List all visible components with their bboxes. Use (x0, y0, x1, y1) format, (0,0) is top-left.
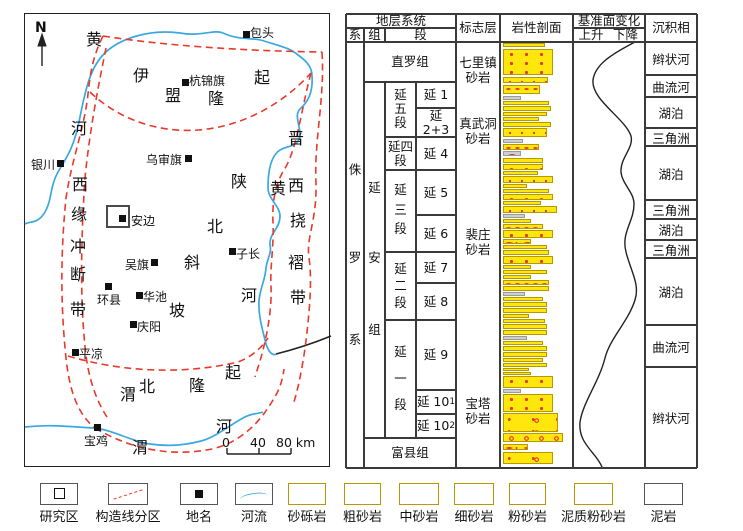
strat-vchar-member-yan3: 延 (385, 183, 416, 197)
litho-bar (503, 77, 548, 83)
region-label-char: 晋 (287, 130, 305, 148)
litho-bar (503, 444, 528, 450)
tectonic-line-symbol (114, 489, 143, 499)
region-label-char: 黄 (269, 180, 287, 198)
city-label-宝鸡: 宝鸡 (84, 432, 108, 449)
city-marker-平凉 (72, 349, 79, 356)
region-label-char: 隆 (188, 377, 206, 395)
region-label-char: 渭 (119, 386, 137, 404)
strat-header-沉积相: 沉积相 (645, 14, 697, 42)
strat-vchar-jurassic-system: 罗 (346, 251, 364, 265)
city-label-杭锦旗: 杭锦旗 (189, 72, 225, 89)
place-symbol (195, 490, 203, 498)
facies-cell-湖泊: 湖泊 (645, 258, 697, 325)
city-marker-子长 (229, 248, 236, 255)
legend-swatch-砂砾岩 (288, 483, 326, 505)
litho-bar (503, 189, 549, 193)
marker-bed-label: 七里镇 砂岩 (459, 55, 497, 85)
marker-bed-label: 真武洞 砂岩 (459, 116, 497, 146)
facies-cell-曲流河: 曲流河 (645, 75, 697, 97)
legend-label-河流: 河流 (241, 506, 267, 525)
region-label-char: 河 (215, 418, 233, 436)
litho-bar (503, 245, 547, 249)
scale-label: 80 km (276, 435, 315, 450)
litho-bar (503, 171, 538, 175)
city-label-子长: 子长 (236, 245, 260, 262)
facies-cell-辫状河: 辫状河 (645, 42, 697, 75)
litho-bar (503, 194, 553, 200)
litho-bar (503, 164, 543, 170)
region-label-char: 河 (240, 287, 258, 305)
river-symbol (240, 491, 269, 504)
strat-vchar-member-yan5: 段 (385, 116, 416, 130)
strat-vchar-yanan-formation: 组 (364, 323, 385, 337)
litho-bar (503, 206, 557, 213)
litho-bar (503, 85, 540, 94)
strat-cell-延10: 延 102 (416, 414, 456, 438)
strat-vchar-jurassic-system: 侏 (346, 163, 364, 177)
strat-cell-富县组: 富县组 (364, 438, 456, 468)
region-label-char: 隆 (207, 90, 225, 108)
scale-label: 40 (250, 435, 266, 450)
litho-bar (503, 214, 525, 218)
litho-bar (503, 376, 553, 388)
litho-bar (503, 158, 543, 163)
litho-bar (503, 358, 543, 362)
city-marker-杭锦旗 (182, 79, 189, 86)
litho-bar (503, 270, 547, 274)
facies-cell-辫状河: 辫状河 (645, 367, 697, 468)
litho-bar (503, 250, 549, 255)
figure-ordos-basin-stratigraphy: N 包头杭锦旗银川乌审旗安边子长吴旗环县华池庆阳平凉宝鸡黄河伊盟隆起西缘冲断带陕… (0, 0, 743, 531)
city-label-环县: 环县 (97, 291, 121, 308)
litho-bar (503, 452, 553, 464)
legend-label-粗砂岩: 粗砂岩 (343, 506, 382, 525)
legend-label-中砂岩: 中砂岩 (399, 506, 438, 525)
legend-swatch-中砂岩 (399, 483, 439, 505)
litho-bar (503, 184, 527, 188)
strat-vchar-member-yan1: 一 (385, 372, 416, 386)
litho-bar (503, 292, 525, 296)
litho-bar (503, 330, 547, 335)
strat-vchar-yanan-formation: 安 (364, 251, 385, 265)
strat-vchar-member-yan5: 延 (385, 88, 416, 102)
city-label-华池: 华池 (143, 288, 167, 305)
region-label-char: 带 (69, 301, 87, 319)
facies-cell-三角洲: 三角洲 (645, 240, 697, 258)
litho-bar (503, 122, 551, 127)
litho-bar (503, 308, 547, 313)
city-label-平凉: 平凉 (79, 345, 103, 362)
strat-cell-延7: 延 7 (416, 252, 456, 283)
litho-bar (503, 151, 521, 156)
grid-line-v (345, 14, 346, 468)
strat-header-系: 系 (346, 28, 364, 42)
grid-line-v (499, 14, 500, 468)
legend-label-细砂岩: 细砂岩 (454, 506, 493, 525)
strat-vchar-member-yan3: 段 (385, 222, 416, 236)
strat-cell-延4: 延 4 (416, 137, 456, 170)
litho-bar (503, 280, 549, 285)
litho-bar (503, 389, 521, 393)
legend-label-构造线分区: 构造线分区 (95, 506, 160, 525)
city-label-乌审旗: 乌审旗 (146, 151, 182, 168)
legend-swatch-粉砂岩 (509, 483, 546, 505)
legend-swatch-河流 (235, 483, 273, 505)
litho-bar (503, 319, 545, 323)
base-level-curve (580, 42, 637, 467)
strat-header-上升: 上升 (574, 28, 608, 42)
region-label-char: 盟 (164, 87, 182, 105)
city-label-庆阳: 庆阳 (137, 318, 161, 335)
legend-swatch-研究区 (40, 483, 78, 505)
city-marker-乌审旗 (185, 155, 192, 162)
litho-bar (503, 346, 547, 351)
north-label: N (35, 20, 47, 36)
region-label-char: 冲 (69, 238, 87, 256)
strat-cell-延四段: 延四 段 (385, 137, 416, 170)
litho-bar (503, 286, 549, 291)
grid-line-v (363, 28, 364, 468)
strat-cell-延8: 延 8 (416, 283, 456, 320)
strat-vchar-member-yan2: 二 (385, 279, 416, 293)
strat-header-岩性剖面: 岩性剖面 (500, 14, 573, 42)
region-label-char: 坡 (168, 302, 186, 320)
legend-swatch-构造线分区 (108, 483, 148, 505)
facies-cell-湖泊: 湖泊 (645, 219, 697, 240)
litho-bar (503, 324, 547, 329)
strat-header-段: 段 (385, 28, 456, 42)
strat-vchar-yanan-formation: 延 (364, 181, 385, 195)
city-marker-环县 (105, 283, 112, 290)
strat-vchar-member-yan1: 延 (385, 345, 416, 359)
study-area-symbol (54, 488, 65, 499)
region-label-char: 缘 (70, 206, 88, 224)
litho-bar (503, 239, 531, 244)
scale-label: 0 (222, 435, 230, 450)
litho-bar (503, 363, 547, 367)
strat-cell-延2+3: 延 2+3 (416, 108, 456, 137)
strat-header-下降: 下降 (607, 28, 644, 42)
legend-label-地名: 地名 (186, 506, 212, 525)
litho-bar (503, 314, 529, 318)
region-label-char: 伊 (132, 67, 150, 85)
litho-bar (503, 128, 547, 137)
litho-bar (503, 275, 531, 279)
region-label-char: 北 (138, 378, 156, 396)
strat-vchar-member-yan3: 三 (385, 203, 416, 217)
strat-header-地层系统: 地层系统 (346, 14, 456, 28)
strat-cell-直罗组: 直罗组 (364, 42, 456, 82)
region-label-char: 河 (70, 120, 88, 138)
legend-label-研究区: 研究区 (39, 506, 78, 525)
litho-bar (503, 224, 543, 229)
litho-bar (503, 297, 543, 301)
strat-header-组: 组 (364, 28, 385, 42)
litho-bar (503, 201, 541, 205)
region-label-char: 挠 (289, 212, 307, 230)
litho-bar (503, 117, 539, 121)
city-marker-庆阳 (130, 321, 137, 328)
legend-label-泥岩: 泥岩 (650, 506, 676, 525)
strat-cell-延1: 延 1 (416, 82, 456, 108)
legend-label-砂砾岩: 砂砾岩 (287, 506, 326, 525)
strat-cell-延5: 延 5 (416, 170, 456, 215)
study-area-box (106, 205, 130, 228)
strat-header-基准面变化: 基准面变化 (573, 14, 645, 28)
litho-bar (503, 43, 545, 47)
litho-bar (503, 372, 531, 375)
legend-swatch-细砂岩 (454, 483, 494, 505)
region-label-char: 斜 (183, 254, 201, 272)
legend-label-泥质粉砂岩: 泥质粉砂岩 (561, 506, 626, 525)
region-label-char: 黄 (85, 31, 103, 49)
litho-bar (503, 413, 558, 432)
facies-cell-曲流河: 曲流河 (645, 325, 697, 367)
city-label-安边: 安边 (131, 212, 155, 229)
region-label-char: 褶 (287, 254, 305, 272)
marker-bed-label: 宝塔 砂岩 (465, 396, 490, 426)
marker-bed-label: 裴庄 砂岩 (465, 227, 490, 257)
facies-cell-三角洲: 三角洲 (645, 200, 697, 219)
litho-bar (503, 106, 551, 111)
legend-swatch-泥质粉砂岩 (574, 483, 613, 505)
litho-bar (503, 302, 547, 307)
litho-bar (503, 139, 523, 143)
legend-swatch-地名 (180, 483, 218, 505)
legend-swatch-泥岩 (644, 483, 683, 505)
litho-bar (503, 176, 553, 183)
region-label-char: 西 (71, 176, 89, 194)
litho-bar (503, 352, 547, 357)
strat-vchar-member-yan1: 段 (385, 398, 416, 412)
strat-vchar-member-yan5: 五 (385, 102, 416, 116)
strat-cell-延10: 延 101 (416, 390, 456, 414)
city-marker-宝鸡 (94, 424, 101, 431)
litho-bar (503, 96, 521, 100)
litho-bar (503, 341, 543, 345)
facies-cell-湖泊: 湖泊 (645, 97, 697, 128)
region-label-char: 北 (206, 218, 224, 236)
litho-bar (503, 49, 553, 75)
region-label-char: 起 (253, 69, 271, 87)
litho-bar (503, 101, 549, 105)
litho-bar (503, 219, 531, 223)
litho-bar (503, 112, 547, 116)
region-label-char: 带 (289, 289, 307, 307)
litho-bar (503, 265, 531, 269)
city-marker-吴旗 (151, 259, 158, 266)
city-label-吴旗: 吴旗 (125, 256, 149, 273)
strat-cell-延6: 延 6 (416, 215, 456, 252)
strat-vchar-member-yan2: 段 (385, 296, 416, 310)
litho-bar (503, 144, 539, 150)
legend-label-粉砂岩: 粉砂岩 (508, 506, 547, 525)
region-label-char: 西 (287, 177, 305, 195)
city-marker-华池 (136, 292, 143, 299)
strat-vchar-jurassic-system: 系 (346, 333, 364, 347)
region-label-char: 起 (224, 364, 242, 382)
region-label-char: 陕 (230, 173, 248, 191)
grid-line-v (572, 14, 573, 468)
legend-swatch-粗砂岩 (344, 483, 381, 505)
strat-cell-延9: 延 9 (416, 320, 456, 390)
litho-bar (503, 336, 527, 340)
strat-header-标志层: 标志层 (456, 14, 500, 42)
facies-cell-三角洲: 三角洲 (645, 128, 697, 146)
litho-bar (503, 368, 529, 371)
litho-bar (503, 230, 553, 238)
region-label-char: 断 (69, 266, 87, 284)
litho-bar (503, 394, 553, 412)
city-label-包头: 包头 (250, 24, 274, 41)
litho-bar (503, 256, 553, 264)
strat-vchar-member-yan2: 延 (385, 262, 416, 276)
litho-bar (503, 433, 563, 442)
facies-cell-湖泊: 湖泊 (645, 146, 697, 200)
city-label-银川: 银川 (31, 156, 55, 173)
region-label-char: 渭 (131, 439, 149, 457)
city-marker-包头 (243, 31, 250, 38)
city-marker-银川 (57, 160, 64, 167)
